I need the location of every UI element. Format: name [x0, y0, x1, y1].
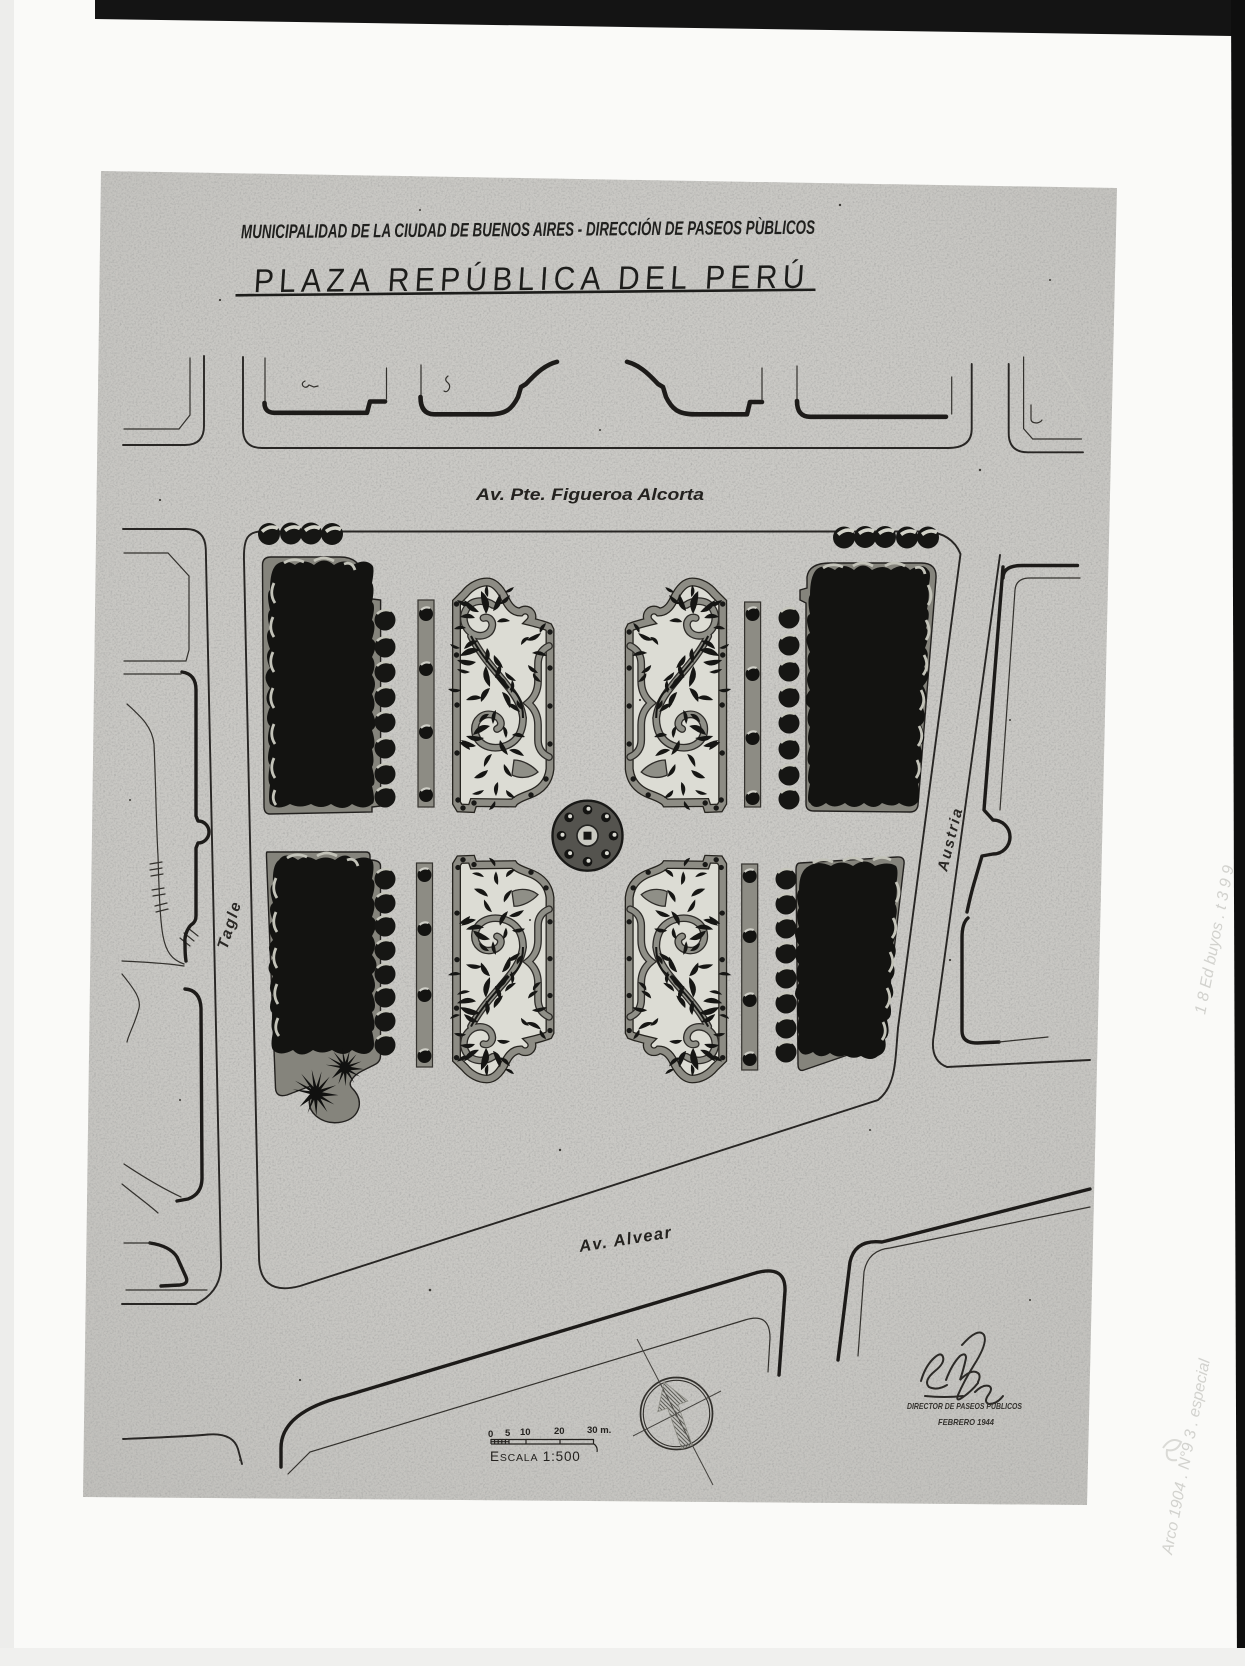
svg-text:FEBRERO 1944: FEBRERO 1944	[938, 1417, 994, 1427]
svg-text:20: 20	[554, 1426, 565, 1437]
svg-text:ESCALA 1:500: ESCALA 1:500	[490, 1449, 581, 1464]
svg-text:5: 5	[505, 1428, 511, 1439]
svg-text:MUNICIPALIDAD DE LA CIUDAD DE: MUNICIPALIDAD DE LA CIUDAD DE BUENOS AIR…	[241, 216, 815, 244]
svg-text:10: 10	[520, 1427, 531, 1438]
svg-text:0: 0	[488, 1429, 493, 1440]
svg-text:DIRECTOR DE PASEOS PUBLICOS: DIRECTOR DE PASEOS PUBLICOS	[907, 1401, 1022, 1411]
svg-text:Av. Pte. Figueroa Alcorta: Av. Pte. Figueroa Alcorta	[475, 486, 704, 504]
svg-text:30 m.: 30 m.	[587, 1425, 611, 1436]
